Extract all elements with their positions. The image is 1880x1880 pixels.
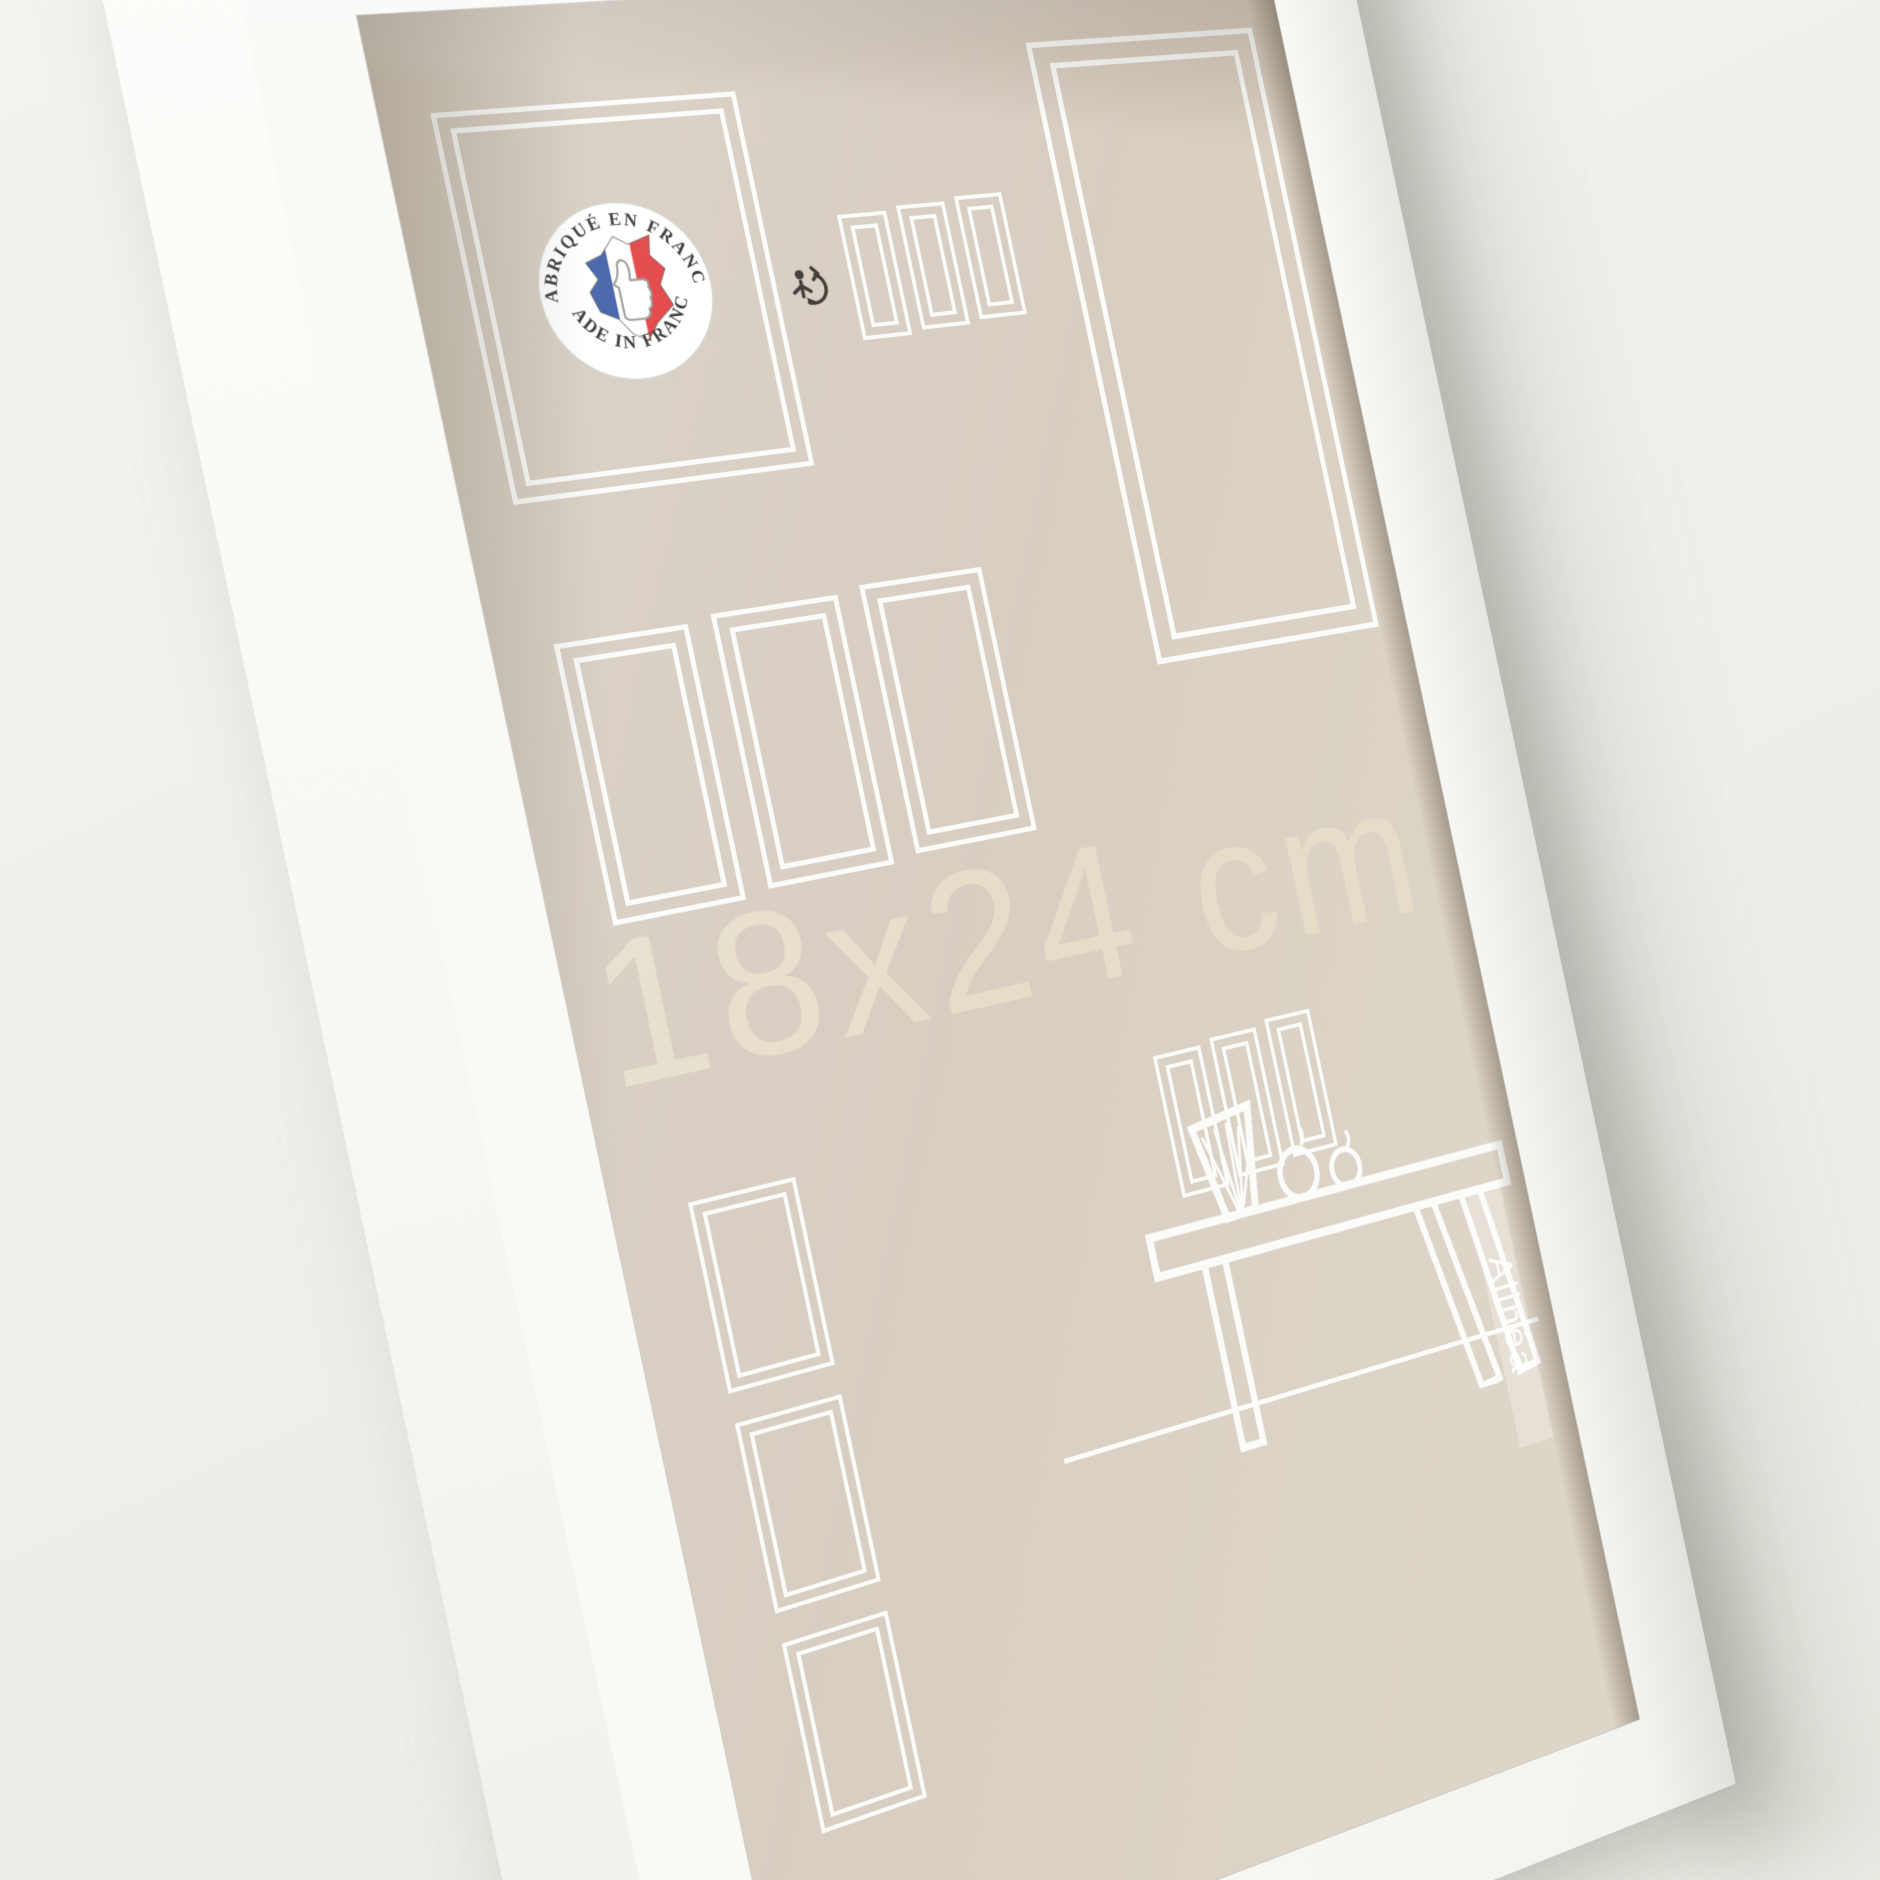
printed-frame-inner-outline: [967, 205, 1014, 307]
printed-frame-inner-outline: [877, 585, 1019, 835]
triman-icon: [784, 262, 844, 323]
printed-frame-inner-outline: [909, 214, 957, 317]
printed-frame-outline: [859, 567, 1036, 853]
vase-drawing: [1189, 1105, 1268, 1223]
printed-frame-outline: [688, 1177, 835, 1393]
printed-frame-inner-outline: [749, 1409, 866, 1598]
printed-frame-outline: FABRIQUÉ EN FRANCE MADE IN FRANCE: [430, 91, 815, 505]
printed-frame-outline: [782, 1611, 927, 1835]
printed-door-inner-outline: [1049, 50, 1356, 641]
printed-frame-inner-outline: [850, 223, 899, 327]
printed-frame-inner-outline: [573, 643, 727, 906]
printed-frame-inner-outline: [729, 613, 877, 870]
product-photo: FABRIQUÉ EN FRANCE MADE IN FRANCE: [0, 0, 1880, 1880]
printed-frame-outline: [735, 1394, 881, 1614]
printed-frame-inner-outline: [796, 1626, 913, 1817]
printed-frame-inner-outline: [702, 1192, 820, 1378]
table-leg: [1204, 1259, 1263, 1448]
printed-door-outline: [1025, 27, 1379, 665]
